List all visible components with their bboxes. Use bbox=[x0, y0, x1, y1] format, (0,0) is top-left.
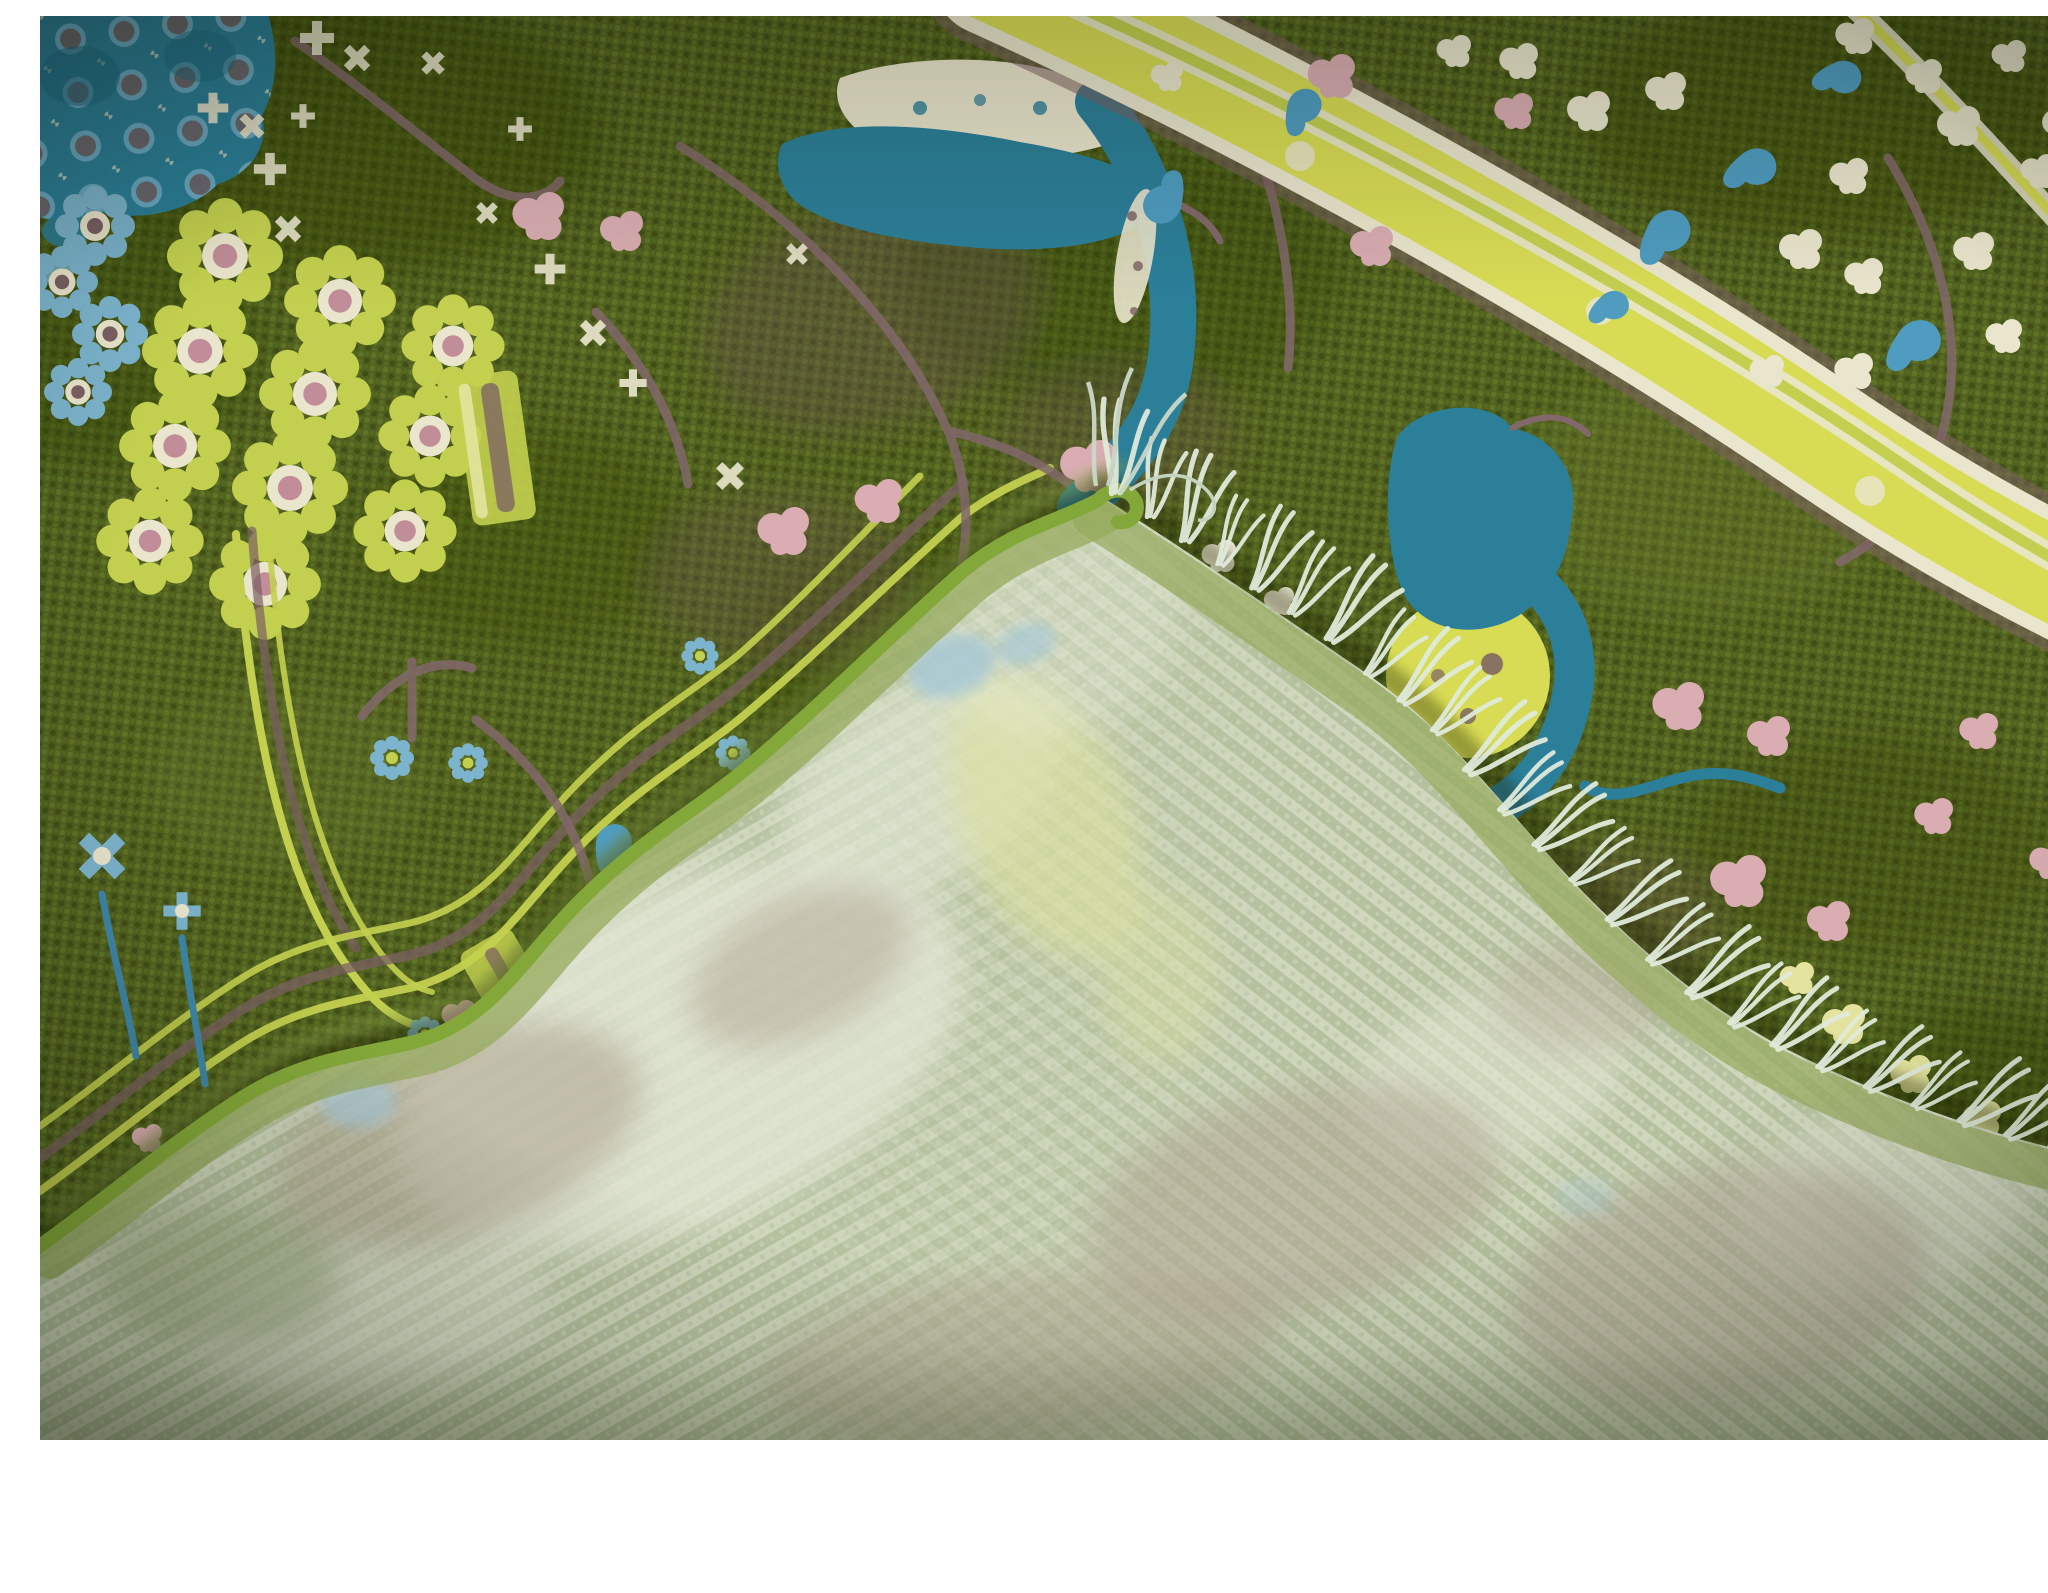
vignette-overlay bbox=[40, 16, 2048, 1440]
photo-white-strip bbox=[40, 1440, 2048, 1577]
rug-photo-canvas bbox=[40, 16, 2048, 1577]
rug-photo: Green Oushak-style wool rug, corner fold… bbox=[40, 16, 2048, 1577]
